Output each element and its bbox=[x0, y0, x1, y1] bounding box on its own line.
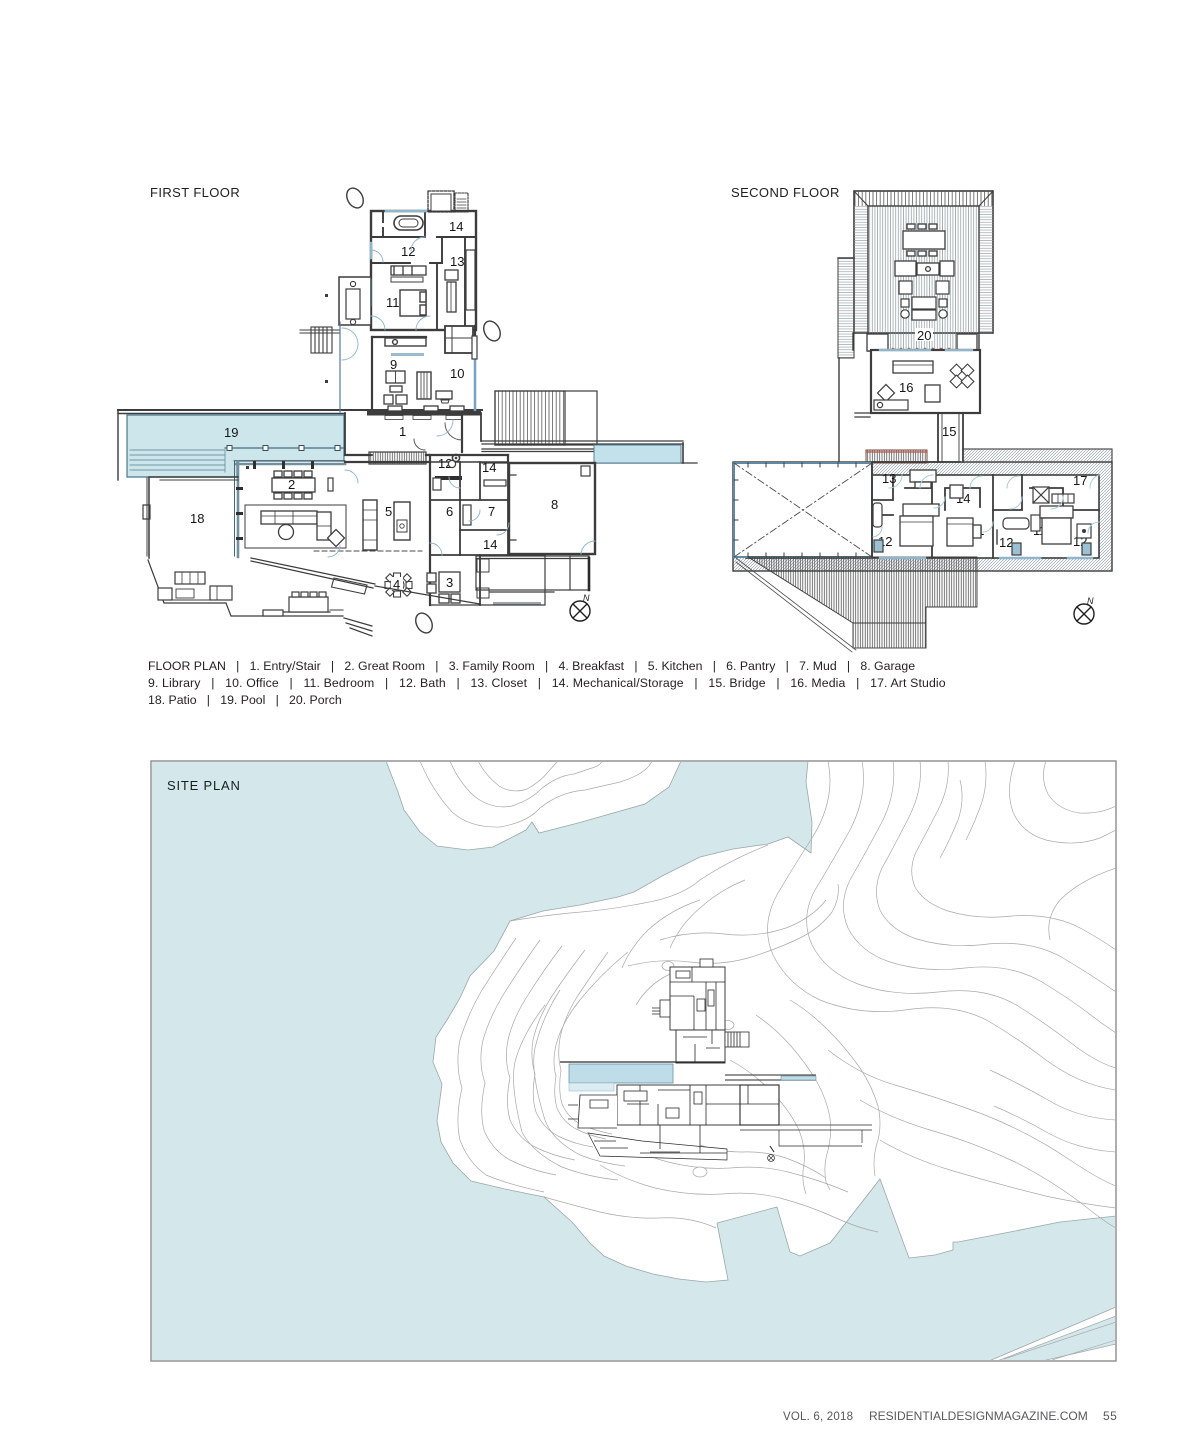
svg-text:SITE PLAN: SITE PLAN bbox=[167, 778, 241, 793]
svg-text:RESIDENTIALDESIGNMAGAZINE.COM: RESIDENTIALDESIGNMAGAZINE.COM bbox=[869, 1409, 1088, 1423]
svg-text:SECOND FLOOR: SECOND FLOOR bbox=[731, 185, 840, 200]
svg-text:13: 13 bbox=[450, 254, 464, 269]
svg-text:12: 12 bbox=[999, 535, 1013, 550]
svg-text:9. Library | 10. Office: 9. Library | 10. Office | 11. Bedroom | … bbox=[148, 676, 946, 690]
svg-text:11: 11 bbox=[386, 295, 400, 310]
svg-text:13: 13 bbox=[882, 471, 896, 486]
svg-text:N: N bbox=[1087, 596, 1094, 606]
svg-text:8: 8 bbox=[551, 497, 558, 512]
svg-text:FIRST FLOOR: FIRST FLOOR bbox=[150, 185, 240, 200]
svg-text:VOL. 6, 2018: VOL. 6, 2018 bbox=[783, 1411, 853, 1423]
svg-text:7: 7 bbox=[488, 504, 495, 519]
svg-text:5: 5 bbox=[385, 504, 392, 519]
svg-text:20: 20 bbox=[917, 328, 931, 343]
svg-text:17: 17 bbox=[1073, 473, 1087, 488]
svg-text:14: 14 bbox=[482, 460, 496, 475]
svg-text:18. Patio | 19. Pool |: 18. Patio | 19. Pool | 20. Porch bbox=[148, 693, 342, 707]
svg-text:N: N bbox=[583, 593, 590, 603]
svg-text:16: 16 bbox=[899, 380, 913, 395]
svg-text:14: 14 bbox=[449, 219, 463, 234]
svg-text:FLOOR PLAN | 1. Entry/Stai: FLOOR PLAN | 1. Entry/Stair | 2. Great R… bbox=[148, 659, 915, 673]
svg-text:1: 1 bbox=[399, 424, 406, 439]
svg-text:14: 14 bbox=[483, 537, 497, 552]
svg-text:15: 15 bbox=[942, 424, 956, 439]
svg-text:19: 19 bbox=[224, 425, 238, 440]
svg-text:55: 55 bbox=[1103, 1409, 1117, 1423]
svg-text:12: 12 bbox=[401, 244, 415, 259]
svg-text:9: 9 bbox=[390, 357, 397, 372]
svg-text:10: 10 bbox=[450, 366, 464, 381]
svg-text:18: 18 bbox=[190, 511, 204, 526]
svg-text:2: 2 bbox=[288, 477, 295, 492]
svg-text:3: 3 bbox=[446, 575, 453, 590]
svg-text:6: 6 bbox=[446, 504, 453, 519]
